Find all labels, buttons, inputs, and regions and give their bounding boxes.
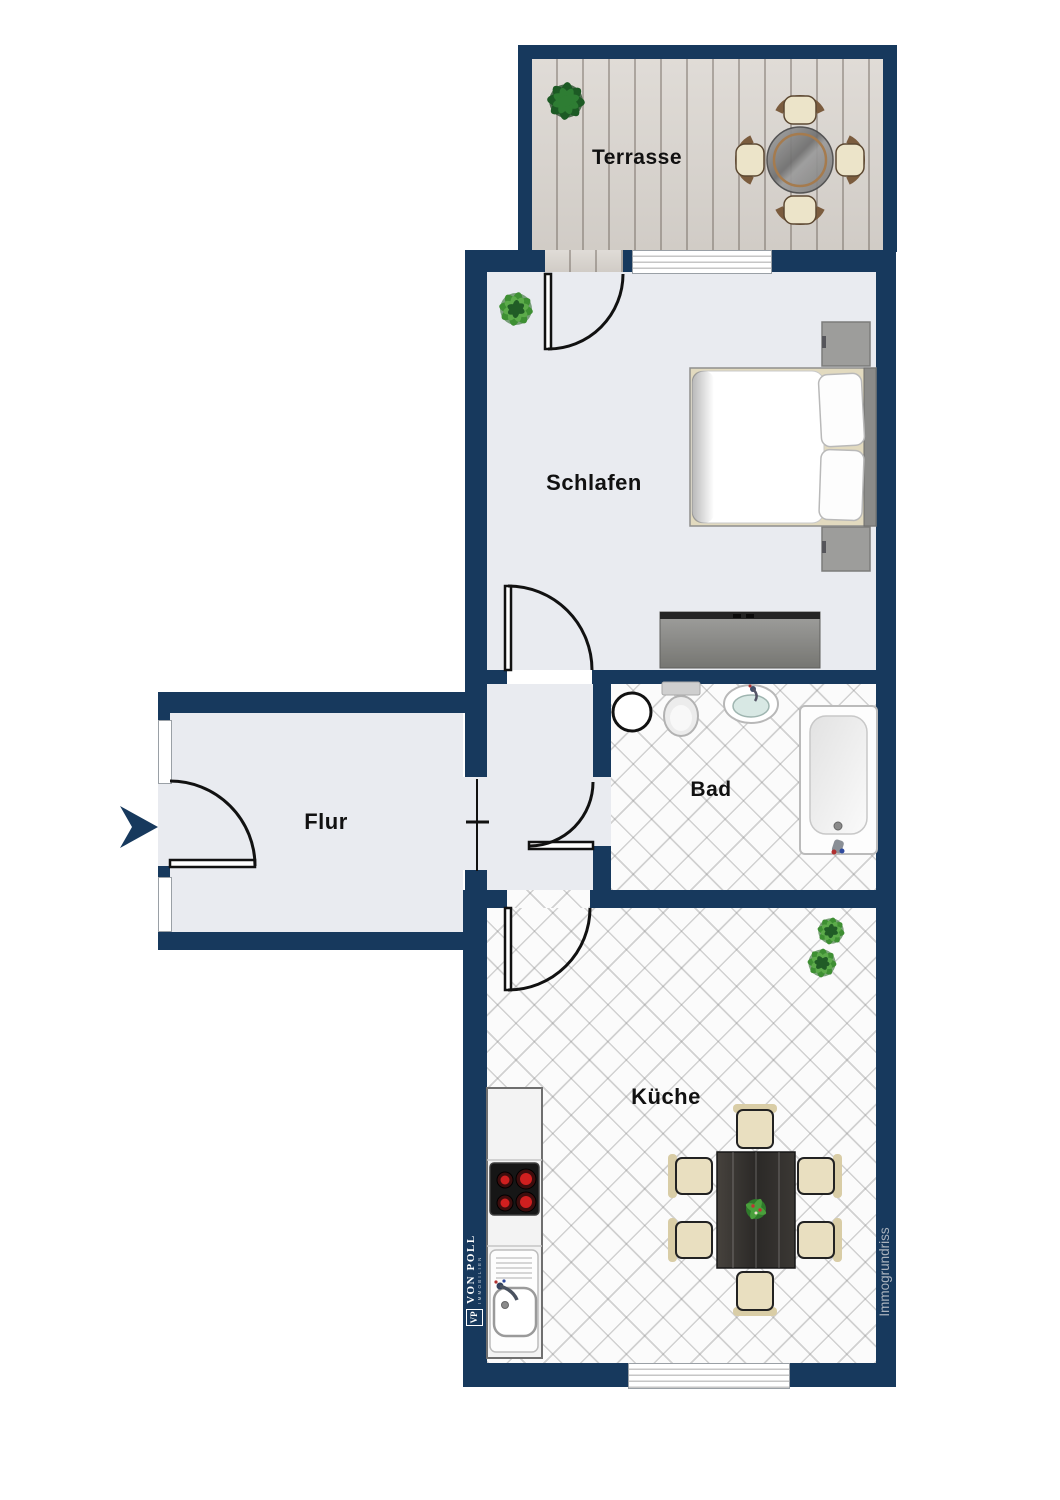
watermark-text: Immogrundriss (877, 1207, 895, 1337)
vp-logo-name: VON POLL (466, 1234, 477, 1304)
bedroom-door (505, 586, 592, 670)
double-bed (690, 368, 876, 526)
entry-door (170, 781, 255, 867)
room-label-terrasse: Terrasse (557, 146, 717, 170)
vp-logo-mark: VP (466, 1309, 483, 1326)
vonpoll-logo: VP VON POLL IMMOBILIEN (463, 1224, 485, 1336)
dresser (660, 612, 820, 668)
entrance-arrow-icon (120, 806, 158, 848)
nightstand (822, 322, 870, 366)
nightstand (822, 527, 870, 571)
floor-plan: Terrasse Schlafen Bad Flur Küche VP VON … (0, 0, 1060, 1500)
doors-layer (170, 274, 623, 990)
washbasin (724, 685, 778, 724)
terrace-plant (547, 82, 586, 121)
bath-door (529, 782, 593, 849)
furniture-layer (0, 0, 1060, 1500)
kitchen-door (505, 908, 590, 990)
bedroom-plant (498, 291, 534, 327)
cooktop (490, 1163, 539, 1215)
terrace-door (545, 274, 623, 349)
hall-passage-marker (466, 779, 489, 871)
bath-stool (613, 693, 651, 731)
kitchen-sink (490, 1250, 538, 1352)
room-label-flur: Flur (246, 809, 406, 835)
room-label-schlafen: Schlafen (514, 470, 674, 496)
vp-logo-subtitle: IMMOBILIEN (478, 1234, 483, 1304)
kitchen-plant (801, 917, 846, 985)
toilet (662, 682, 700, 736)
room-label-bad: Bad (651, 778, 771, 802)
room-label-kueche: Küche (586, 1084, 746, 1110)
dining-set (668, 1104, 842, 1316)
bathtub (800, 706, 877, 855)
terrace-table-set (736, 96, 864, 224)
